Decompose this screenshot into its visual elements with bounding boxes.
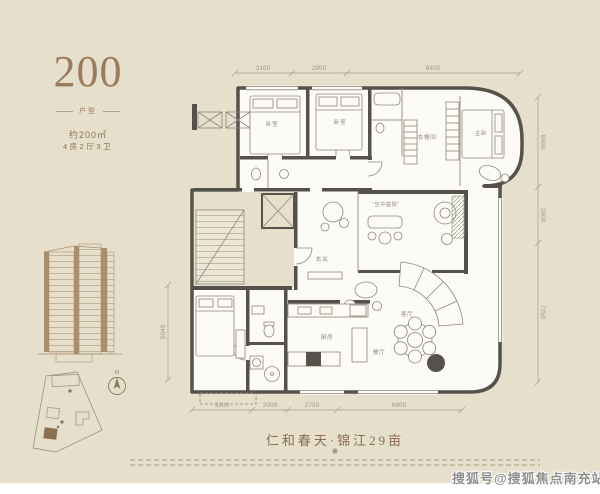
dim-right-1: 8400 xyxy=(539,135,546,150)
dim-top-3: 8400 xyxy=(426,65,441,72)
watermark: 搜狐号@搜狐焦点南充站 xyxy=(452,468,600,487)
dim-bottom-3: 2750 xyxy=(305,402,320,409)
living-label: 客厅 xyxy=(401,310,414,318)
dim-top-2: 2950 xyxy=(312,65,327,72)
disclaimer-line xyxy=(130,459,540,461)
terrace-label: “空中庭院” xyxy=(372,200,399,208)
common-core xyxy=(194,192,294,287)
dim-top-1: 3100 xyxy=(256,65,271,72)
bedroom2-label: 卧室 xyxy=(334,118,347,126)
flower-ornament-icon: ❋ xyxy=(150,447,520,456)
dim-bottom-2: 2000 xyxy=(263,402,278,409)
foyer-label: 玄关 xyxy=(316,255,329,263)
dim-bottom-1: 3300 xyxy=(215,402,230,409)
dim-right-3: 7250 xyxy=(539,305,546,320)
closet-label: 衣帽间 xyxy=(418,133,437,141)
bedroom1-label: 卧室 xyxy=(266,120,279,128)
dim-bottom-4: 6800 xyxy=(392,402,407,409)
dim-right-2: 2600 xyxy=(539,208,546,223)
floor-plan-canvas: 卧室 卧室 主卧 衣帽间 “空中庭院” 玄关 客厅 餐厅 厨房 xyxy=(0,0,600,494)
dim-left-1: 5040 xyxy=(160,324,167,339)
master-bedroom-label: 主卧 xyxy=(475,129,488,137)
floorplan-page: 200 户型 约200㎡ 4房2厅3卫 xyxy=(0,0,600,494)
dining-label: 餐厅 xyxy=(373,348,386,356)
kitchen-label: 厨房 xyxy=(321,333,334,341)
disclaimer-line xyxy=(130,464,540,466)
